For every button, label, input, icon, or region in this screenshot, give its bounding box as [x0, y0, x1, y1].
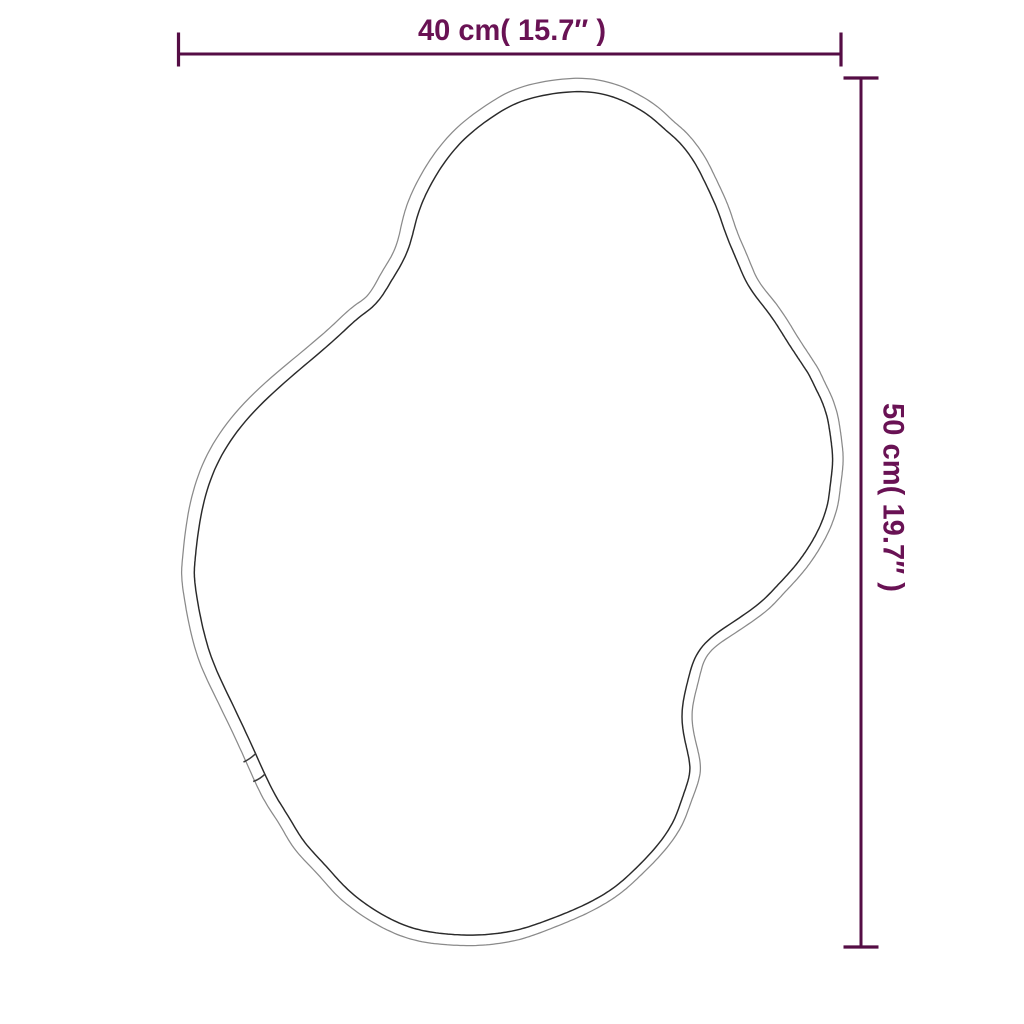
- svg-text:50 cm( 19.7″ ): 50 cm( 19.7″ ): [877, 403, 910, 592]
- svg-text:40 cm( 15.7″ ): 40 cm( 15.7″ ): [418, 14, 606, 47]
